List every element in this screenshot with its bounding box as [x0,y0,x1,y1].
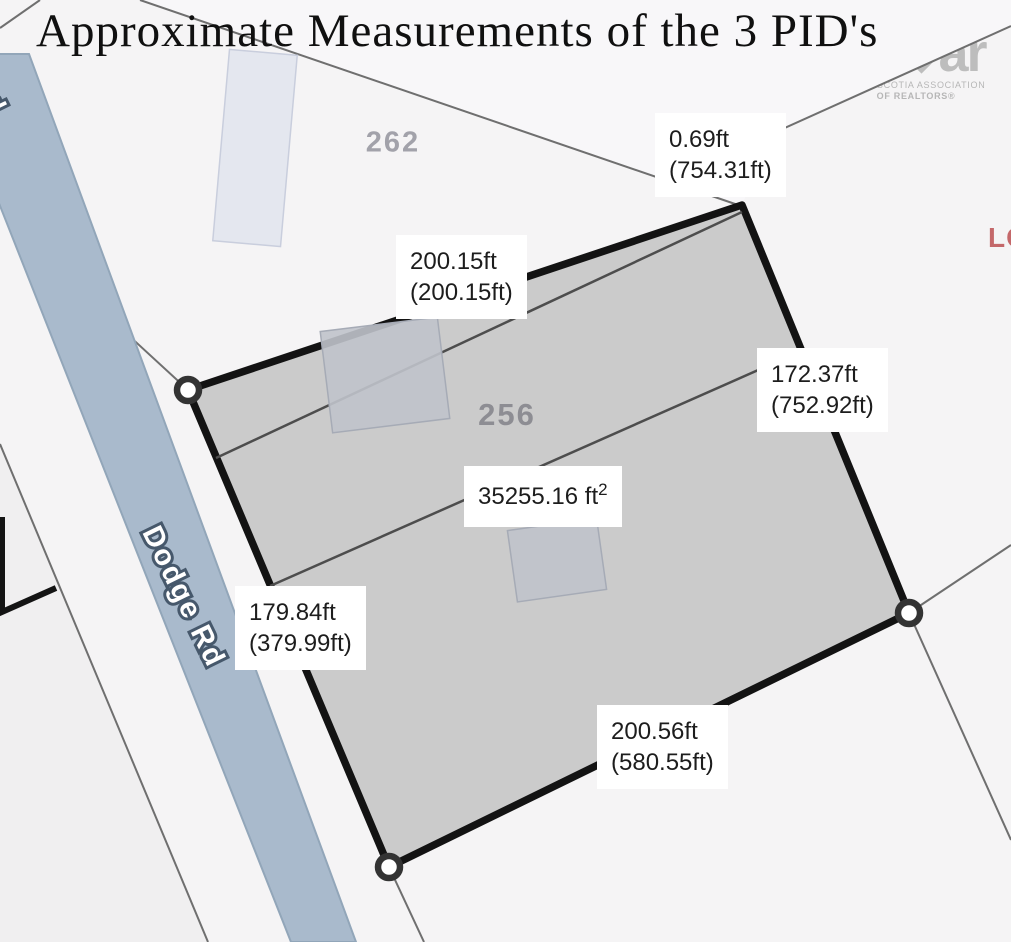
measurement-top-segment: 0.69ft [669,124,772,155]
parcel-number-262: 262 [366,127,420,160]
measurement-label-upper-left: 200.15ft (200.15ft) [396,235,527,319]
partial-lot-text: LO [988,222,1011,254]
measurement-upper-left-segment: 200.15ft [410,246,513,277]
parcel-number-256: 256 [478,397,536,433]
measurement-left-segment: 179.84ft [249,597,352,628]
measurement-label-right: 172.37ft (752.92ft) [757,348,888,432]
measurement-top-total: (754.31ft) [669,155,772,186]
measurement-bottom-segment: 200.56ft [611,716,714,747]
measurement-bottom-total: (580.55ft) [611,747,714,778]
building-footprint-262 [213,49,297,246]
measurement-upper-left-total: (200.15ft) [410,277,513,308]
area-value: 35255.16 ft [478,483,598,510]
vertex-handle-south[interactable] [378,856,400,878]
measurement-label-top: 0.69ft (754.31ft) [655,113,786,197]
building-footprint-upper-256 [320,317,450,433]
vertex-handle-east[interactable] [898,602,920,624]
measurement-label-left: 179.84ft (379.99ft) [235,586,366,670]
vertex-handle-west[interactable] [177,379,199,401]
boundary-line-east-upper [909,545,1011,613]
boundary-line-top-left-corner [0,0,40,28]
building-footprint-lower-256 [507,518,606,602]
measurement-right-total: (752.92ft) [771,390,874,421]
measurement-label-bottom: 200.56ft (580.55ft) [597,705,728,789]
measurement-right-segment: 172.37ft [771,359,874,390]
page-title: Approximate Measurements of the 3 PID's [36,2,878,60]
boundary-line-east-lower [909,613,1011,840]
area-label: 35255.16 ft2 [464,466,622,527]
area-superscript: 2 [598,480,607,499]
map-viewport: nsar NOVA SCOTIA ASSOCIATION OF REALTORS… [0,0,1011,942]
measurement-left-total: (379.99ft) [249,628,352,659]
